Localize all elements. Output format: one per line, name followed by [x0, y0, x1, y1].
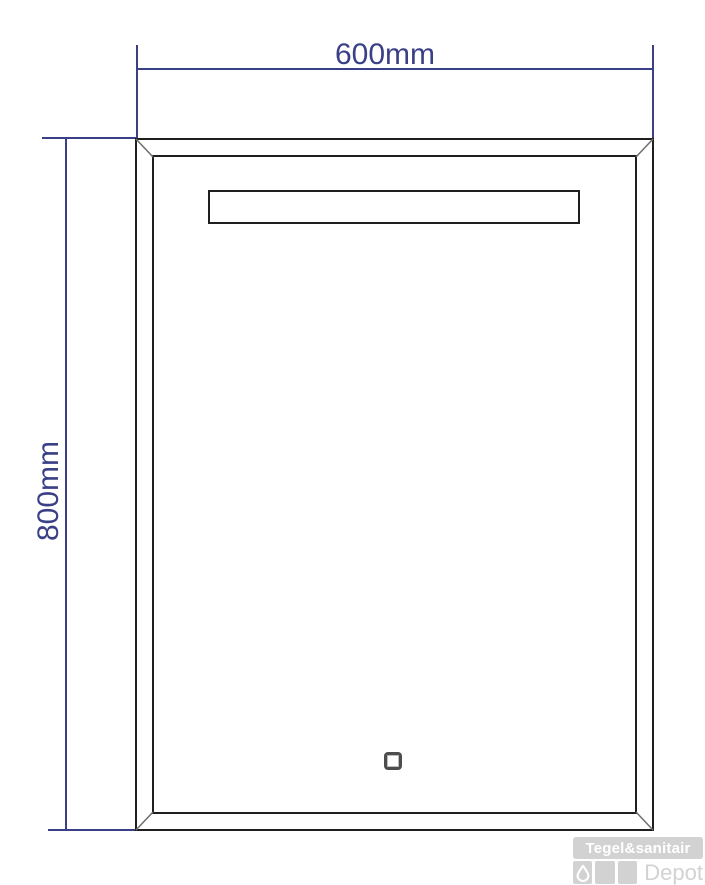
logo-tile-row: Depot	[573, 861, 703, 884]
width-dimension-label: 600mm	[327, 40, 443, 70]
height-dimension-tick-top	[42, 137, 137, 139]
led-light-strip	[208, 190, 580, 224]
water-drop-icon	[575, 864, 591, 882]
width-dimension-tick-right	[652, 45, 654, 139]
logo: Tegel&sanitair Depot	[573, 837, 703, 884]
logo-tile-drop	[573, 861, 592, 884]
touch-sensor-button	[384, 752, 402, 770]
logo-tile-blank-1	[595, 861, 614, 884]
product-drawing-canvas: 600mm 800mm Tegel&sanitair Depot	[0, 0, 705, 885]
mirror-inner-frame	[152, 155, 637, 814]
height-dimension-label: 800mm	[34, 431, 64, 551]
height-dimension-line	[65, 138, 67, 831]
logo-depot-text: Depot	[644, 861, 703, 884]
logo-brand-text: Tegel&sanitair	[585, 840, 690, 857]
width-dimension-tick-left	[136, 45, 138, 139]
height-dimension-tick-bottom	[48, 829, 135, 831]
logo-tile-blank-2	[618, 861, 637, 884]
logo-brand-bar: Tegel&sanitair	[573, 837, 703, 859]
width-dimension-line	[137, 68, 653, 70]
